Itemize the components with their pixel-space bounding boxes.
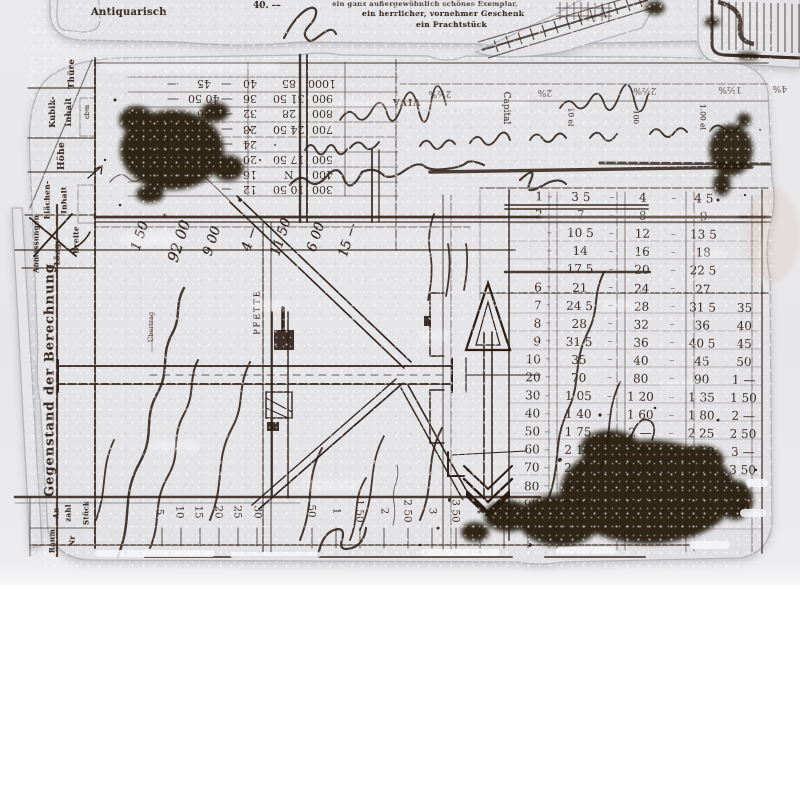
reckoner-value-2: 2 80 (613, 462, 665, 477)
reckoner-value-2: 3 20 (613, 480, 665, 495)
upper-table-cell (270, 137, 308, 152)
unit-col-3: 1.00 el (699, 104, 708, 130)
reckoner-value-1: 14 (554, 244, 606, 259)
reckoner-value-2: 28 (615, 299, 667, 314)
reckoner-value-1: 2 10 (552, 443, 604, 458)
table-dash: – (542, 390, 552, 401)
reckoner-value-2: 4 (617, 190, 669, 205)
table-dash: – (605, 337, 615, 348)
upper-table-cell: 16 (236, 167, 264, 182)
reckoner-value-2: 32 (615, 317, 667, 332)
strip-line2: ein herrlicher, vornehmer Geschenk (362, 9, 524, 18)
uebertrag-label: Übertrag (147, 312, 155, 342)
table-dash: – (606, 246, 616, 257)
upper-table-cell: 28 (270, 106, 308, 121)
upper-table-cell: 36 (236, 91, 264, 106)
reckoner-value-1: 24 5 (553, 298, 605, 313)
reckoner-value-1: 1 75 (552, 425, 604, 440)
upper-table-cell: 28 (236, 122, 264, 137)
reckoner-value-4: 2 50 (726, 427, 760, 441)
table-dash: – (665, 464, 675, 475)
upper-table-cell: 400 (304, 167, 340, 182)
upper-table-col-forty: 4036322824201612 (236, 76, 264, 198)
table-dash: – (606, 228, 616, 239)
table-dash: – (543, 318, 553, 329)
reckoner-value-2: 8 (617, 209, 669, 224)
reckoner-value-4: 1 — (727, 373, 761, 387)
upper-table-cell: 12 (236, 182, 264, 197)
table-dash: – (604, 391, 614, 402)
reckoner-value-1: 1 05 (552, 389, 604, 404)
table-dash: – (604, 427, 614, 438)
reckoner-index: 40 (502, 406, 542, 420)
table-dash: – (607, 210, 617, 221)
table-dash: – (666, 410, 676, 421)
handwritten-amount: 15 — (335, 221, 361, 259)
header-thuere: Thüre (67, 59, 77, 89)
table-dash: – (545, 209, 555, 220)
unit-col-1: 10 el (567, 108, 576, 127)
reckoner-value-2: 36 (615, 335, 667, 350)
table-dash: – (666, 446, 676, 457)
table-dash: – (665, 500, 675, 511)
handwritten-amount: 11 50 (267, 216, 294, 258)
scale-number: 1 50 (348, 496, 372, 526)
scale-number: 1 (324, 496, 348, 526)
upper-table-cell: 500 (304, 152, 340, 167)
table-dash: – (669, 211, 679, 222)
reckoner-value-2: 1 60 (614, 408, 666, 423)
table-dash: – (668, 283, 678, 294)
printed-text-layer: Antiquarisch 40. — ein ganz außergewöhnl… (0, 0, 800, 585)
percent-mark: 2% (538, 87, 552, 97)
header-an: An (52, 507, 61, 518)
viva-mark: VIVA (392, 96, 420, 106)
unit-col-2: 100 (632, 110, 641, 124)
upper-table-col-price: 8531 502824 5017 50N10 50 (270, 76, 308, 198)
table-dash: – (544, 263, 554, 274)
table-dash: – (605, 318, 615, 329)
reckoner-value-3: 36 (677, 318, 727, 333)
scale-small: 51015202530 (150, 498, 268, 526)
reckoner-value-3: 4 5 (679, 191, 729, 206)
table-dash: – (666, 428, 676, 439)
reckoner-value-3: 9 (679, 209, 729, 224)
table-dash: – (668, 229, 678, 240)
table-dash: – (543, 300, 553, 311)
table-dash: – (543, 336, 553, 347)
scale-number: 2 50 (396, 496, 420, 526)
reckoner-value-1: 21 (554, 280, 606, 295)
handwritten-amount: 1 50 (128, 219, 153, 253)
scale-number: 30 (248, 498, 268, 526)
table-dash: – (544, 245, 554, 256)
percent-mark: 4% (773, 83, 787, 93)
reckoner-value-2: 40 (615, 353, 667, 368)
table-dash: – (544, 281, 554, 292)
table-dash: – (666, 392, 676, 403)
reckoner-value-2 (613, 505, 665, 506)
reckoner-value-1: 35 (553, 352, 605, 367)
scale-number: 4 50 (492, 496, 516, 526)
header-abmessungen: Abmessungen (32, 215, 41, 273)
reckoner-value-1: 2 45 (551, 461, 603, 476)
table-dash: – (544, 227, 554, 238)
reckoner-value-1: 3 5 (555, 190, 607, 205)
table-dash: – (603, 499, 613, 510)
scale-number: 5 (516, 496, 540, 526)
table-dash: – (665, 482, 675, 493)
reckoner-value-3: 40 5 (677, 336, 727, 351)
upper-table-cell: 700 (304, 122, 340, 137)
table-dash: – (667, 355, 677, 366)
reckoner-index: 30 (502, 388, 542, 402)
upper-table-cell: 300 (304, 182, 340, 197)
upper-table-cell: N (270, 167, 308, 182)
header-kubik-1: Kubik- (47, 96, 57, 128)
reckoner-value-1: 10 5 (554, 226, 606, 241)
upper-table-cell: 40 (236, 76, 264, 91)
reckoner-value-3: 27 (678, 282, 728, 297)
reckoner-value-3: 2 25 (676, 426, 726, 441)
reckoner-value-2: 12 (616, 227, 668, 242)
handwritten-amount: 4 — (238, 223, 261, 253)
reckoner-index: 50 (502, 424, 542, 438)
reckoner-value-3: 2 70 (676, 444, 726, 459)
reckoner-value-3: 1 35 (676, 390, 726, 405)
reckoner-index: 80 (501, 479, 541, 493)
table-dash: – (542, 408, 552, 419)
reckoner-value-2: 80 (615, 371, 667, 386)
reckoner-value-1: 7 (555, 208, 607, 223)
reckoner-value-1: 2 80 (551, 479, 603, 494)
reckoner-index: 2 (505, 207, 545, 221)
upper-table-cell: 20 (236, 152, 264, 167)
table-dash: – (542, 444, 552, 455)
upper-table-cell: 36 (186, 106, 222, 121)
table-dash: – (667, 319, 677, 330)
upper-table-col-hundreds: 1000900800700500400300 (304, 76, 340, 198)
table-dash: – (604, 409, 614, 420)
reckoner-value-4: 3 — (726, 445, 760, 459)
handwritten-amount: 6 00 (304, 220, 329, 254)
reckoner-value-3: 22 5 (678, 264, 728, 279)
table-dash: – (605, 373, 615, 384)
header-hoehe: Höhe (57, 142, 67, 170)
table-dash: – (543, 354, 553, 365)
reckoner-value-4: 40 (727, 318, 761, 332)
reckoner-value-4: 3 50 (725, 463, 759, 477)
table-dash: – (667, 301, 677, 312)
upper-table-cell: 45 (186, 76, 222, 91)
reckoner-index: 6 (504, 280, 544, 294)
header-kubik-2: Inhalt (63, 97, 73, 126)
reckoner-index: 1 (505, 189, 545, 203)
strip-line3: ein Prachtstück (416, 20, 487, 29)
table-dash: – (541, 481, 551, 492)
scale-number: 4 (468, 496, 492, 526)
reckoner-value-3: 18 (678, 245, 728, 260)
reckoner-value-1: 70 (553, 371, 605, 386)
table-dash: – (604, 445, 614, 456)
reckoner-index: 10 (503, 352, 543, 366)
table-dash: – (542, 462, 552, 473)
reckoner-value-2: 20 (616, 263, 668, 278)
header-flaechen-1: Flächen- (43, 181, 52, 220)
handwritten-amount: 9 00 (200, 224, 225, 258)
reckoner-value-1: 31 5 (553, 334, 605, 349)
table-dash: – (605, 355, 615, 366)
reckoner-value-2: 2 40 (614, 444, 666, 459)
upper-table-cell (304, 137, 340, 152)
reckoner-index: 9 (503, 334, 543, 348)
reckoner-value-3: 31 5 (677, 300, 727, 315)
header-laenge: Länge (53, 238, 62, 265)
reckoner-index: 70 (501, 460, 541, 474)
table-dash: – (603, 463, 613, 474)
reckoner-index: 60 (502, 442, 542, 456)
reckoner-value-2: 1 20 (614, 389, 666, 404)
table-dash: – (603, 481, 613, 492)
antiquarisch-label: Antiquarisch (91, 7, 167, 18)
header-cbm: cbm (83, 105, 91, 119)
scale-number: 25 (228, 498, 248, 526)
page-blank-area (0, 585, 800, 800)
table-dash: – (606, 264, 616, 275)
reckoner-value-1: 17 5 (554, 262, 606, 277)
reckoner-index: 20 (503, 370, 543, 384)
reckoner-value-1: 3 15 (551, 497, 603, 512)
table-dash: – (542, 426, 552, 437)
table-dash: – (607, 192, 617, 203)
reckoner-index: 8 (503, 316, 543, 330)
upper-table-cell: 32 (236, 106, 264, 121)
reckoner-value-4: 1 50 (726, 391, 760, 405)
reckoner-index: 7 (503, 298, 543, 312)
upper-table-cell: 800 (304, 106, 340, 121)
table-dash: – (543, 372, 553, 383)
table-dash: – (667, 373, 677, 384)
reckoner-value-2: 16 (616, 245, 668, 260)
header-raum: Raum (48, 529, 57, 553)
scale-number: 15 (189, 498, 209, 526)
reckoner-value-3 (675, 488, 725, 489)
upper-table-cell: 1000 (304, 76, 340, 91)
table-dash: – (668, 247, 678, 258)
upper-table-cell: 17 50 (270, 152, 308, 167)
scale-number: 3 50 (444, 496, 468, 526)
scale-large: 5011 5022 5033 5044 505 (300, 496, 540, 526)
reckoner-value-2: 2 — (614, 426, 666, 441)
reckoner-value-3: 90 (677, 372, 727, 387)
reckoner-value-4: 50 (727, 355, 761, 369)
table-dash: – (605, 300, 615, 311)
reckoner-value-1: 28 (553, 316, 605, 331)
header-flaechen-2: Inhalt (60, 186, 69, 213)
upper-table-cell: 31 50 (270, 91, 308, 106)
header-stueck: Stück (82, 501, 91, 525)
reckoner-value-4: 2 — (726, 409, 760, 423)
table-dash: – (541, 499, 551, 510)
reckoner-value-3: 3 15 (675, 463, 725, 478)
scale-number: 10 (170, 498, 190, 526)
table-dash: – (669, 193, 679, 204)
reckoner-value-3: 1 80 (676, 408, 726, 423)
reckoner-table: 1 – 3 5 – 4 – 4 5 2 – 7 – 8 – 9 – 10 5 –… (501, 187, 763, 516)
reckoner-value-4: 35 (727, 300, 761, 314)
upper-table-cell: 24 50 (270, 122, 308, 137)
percent-mark: 2½% (428, 88, 451, 98)
upper-table-cell: 24 (236, 137, 264, 152)
table-dash: – (606, 282, 616, 293)
reckoner-value-3: 45 (677, 354, 727, 369)
column-title-gegenstand: Gegenstand der Berechnung (43, 263, 58, 497)
header-nr: Nr (68, 536, 77, 547)
reckoner-value-2: 24 (616, 281, 668, 296)
upper-table-cell: 10 50 (270, 182, 308, 197)
product-photo: Antiquarisch 40. — ein ganz außergewöhnl… (0, 0, 800, 585)
table-dash: – (667, 337, 677, 348)
reckoner-value-4: 45 (727, 337, 761, 351)
header-breite: Breite (72, 226, 81, 254)
reckoner-value-4: 50 (725, 499, 759, 513)
scale-number: 3 (420, 496, 444, 526)
scale-number: 2 (372, 496, 396, 526)
scale-number: 50 (300, 496, 324, 526)
percent-mark: 2½% (633, 85, 656, 95)
scale-number: 20 (209, 498, 229, 526)
capital-label: Capital (501, 92, 511, 125)
page: Antiquarisch 40. — ein ganz außergewöhnl… (0, 0, 800, 800)
table-dash: – (545, 191, 555, 202)
percent-mark: 1½% (718, 84, 741, 94)
handwritten-amount: 92 00 (164, 218, 194, 264)
upper-table-cell: 900 (304, 91, 340, 106)
reckoner-value-3: 13 5 (678, 227, 728, 242)
reckoner-value-1: 1 40 (552, 407, 604, 422)
table-dash: – (668, 265, 678, 276)
reckoner-value-3 (675, 506, 725, 507)
scale-number: 5 (150, 498, 170, 526)
upper-table-cell: 85 (270, 76, 308, 91)
upper-table-cell: 40 50 (186, 91, 222, 106)
price-label: 40. — (253, 1, 281, 11)
strip-line1: ein ganz außergewöhnlich schönes Exempla… (332, 0, 518, 8)
pfette-label: PFETTE (253, 289, 262, 334)
header-zahl: zahl (64, 504, 73, 521)
upper-table-col-partial: 4540 5036 (186, 76, 222, 122)
